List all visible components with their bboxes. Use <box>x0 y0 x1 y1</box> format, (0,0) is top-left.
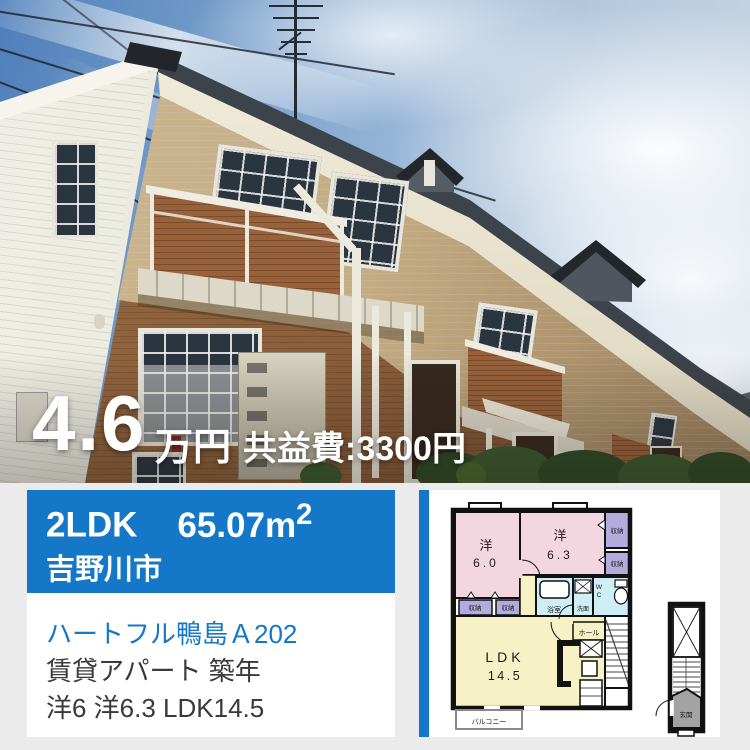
entrance-label: 玄関 <box>680 710 693 719</box>
sliding-door-gap <box>524 706 540 711</box>
summary-header: 2LDK65.07m2 吉野川市 <box>27 490 395 593</box>
bathtub <box>540 581 569 598</box>
room-west2 <box>520 512 605 575</box>
summary-card: 2LDK65.07m2 吉野川市 ハートフル鴨島Ａ202 賃貸アパート 築年 洋… <box>27 490 395 737</box>
kitchen-stove <box>582 661 597 676</box>
wc-label-c: C <box>597 592 602 599</box>
price-value: 4.6 <box>32 378 146 469</box>
west2-label: 洋 <box>553 528 566 543</box>
floorplan: 洋 6.0 洋 6.3 収納 収納 収納 収納 浴室 洗面 W C ホール LD… <box>429 490 720 737</box>
toilet <box>615 588 628 604</box>
room-breakdown: 洋6 洋6.3 LDK14.5 <box>46 688 264 725</box>
entrance-area <box>672 689 701 728</box>
west2-size: 6.3 <box>547 548 573 562</box>
ldk-label: LDK <box>485 649 524 665</box>
property-title-link[interactable]: ハートフル鴨島Ａ202 <box>46 614 297 651</box>
property-photo[interactable]: 4.6 万円 共益費:3300円 <box>0 0 750 483</box>
closet-label: 収納 <box>469 603 482 612</box>
ldk-size: 14.5 <box>488 669 522 683</box>
entrance-step <box>678 730 694 736</box>
layout-and-area: 2LDK65.07m2 <box>46 499 312 546</box>
wash-label: 洗面 <box>577 605 589 613</box>
price-overlay: 4.6 万円 共益費:3300円 <box>0 0 750 483</box>
floorplan-card: 洋 6.0 洋 6.3 収納 収納 収納 収納 浴室 洗面 W C ホール LD… <box>429 490 720 737</box>
floor-area: 65.07m <box>177 506 296 545</box>
west1-label: 洋 <box>479 538 492 553</box>
layout-type: 2LDK <box>46 506 137 545</box>
kitchen-counter <box>580 680 602 706</box>
closet-label: 収納 <box>611 559 624 568</box>
listing-card: 4.6 万円 共益費:3300円 2LDK65.07m2 吉野川市 ハートフル鴨… <box>0 0 750 750</box>
balcony-label: バルコニー <box>472 718 507 726</box>
bath-label: 浴室 <box>547 605 561 614</box>
corridor <box>520 575 536 622</box>
area-superscript: 2 <box>296 499 312 531</box>
hall-label: ホール <box>579 629 600 637</box>
toilet-tank <box>615 580 627 587</box>
closet-label: 収納 <box>611 526 624 535</box>
property-category: 賃貸アパート 築年 <box>46 651 261 688</box>
room-west1 <box>455 512 520 598</box>
accent-stripe <box>419 490 429 737</box>
price-unit: 万円 <box>155 416 231 471</box>
west1-size: 6.0 <box>473 556 499 570</box>
closet-label: 収納 <box>502 603 515 612</box>
wc-label-w: W <box>596 584 603 591</box>
maintenance-fee: 共益費:3300円 <box>243 421 466 470</box>
city-name: 吉野川市 <box>46 546 162 588</box>
